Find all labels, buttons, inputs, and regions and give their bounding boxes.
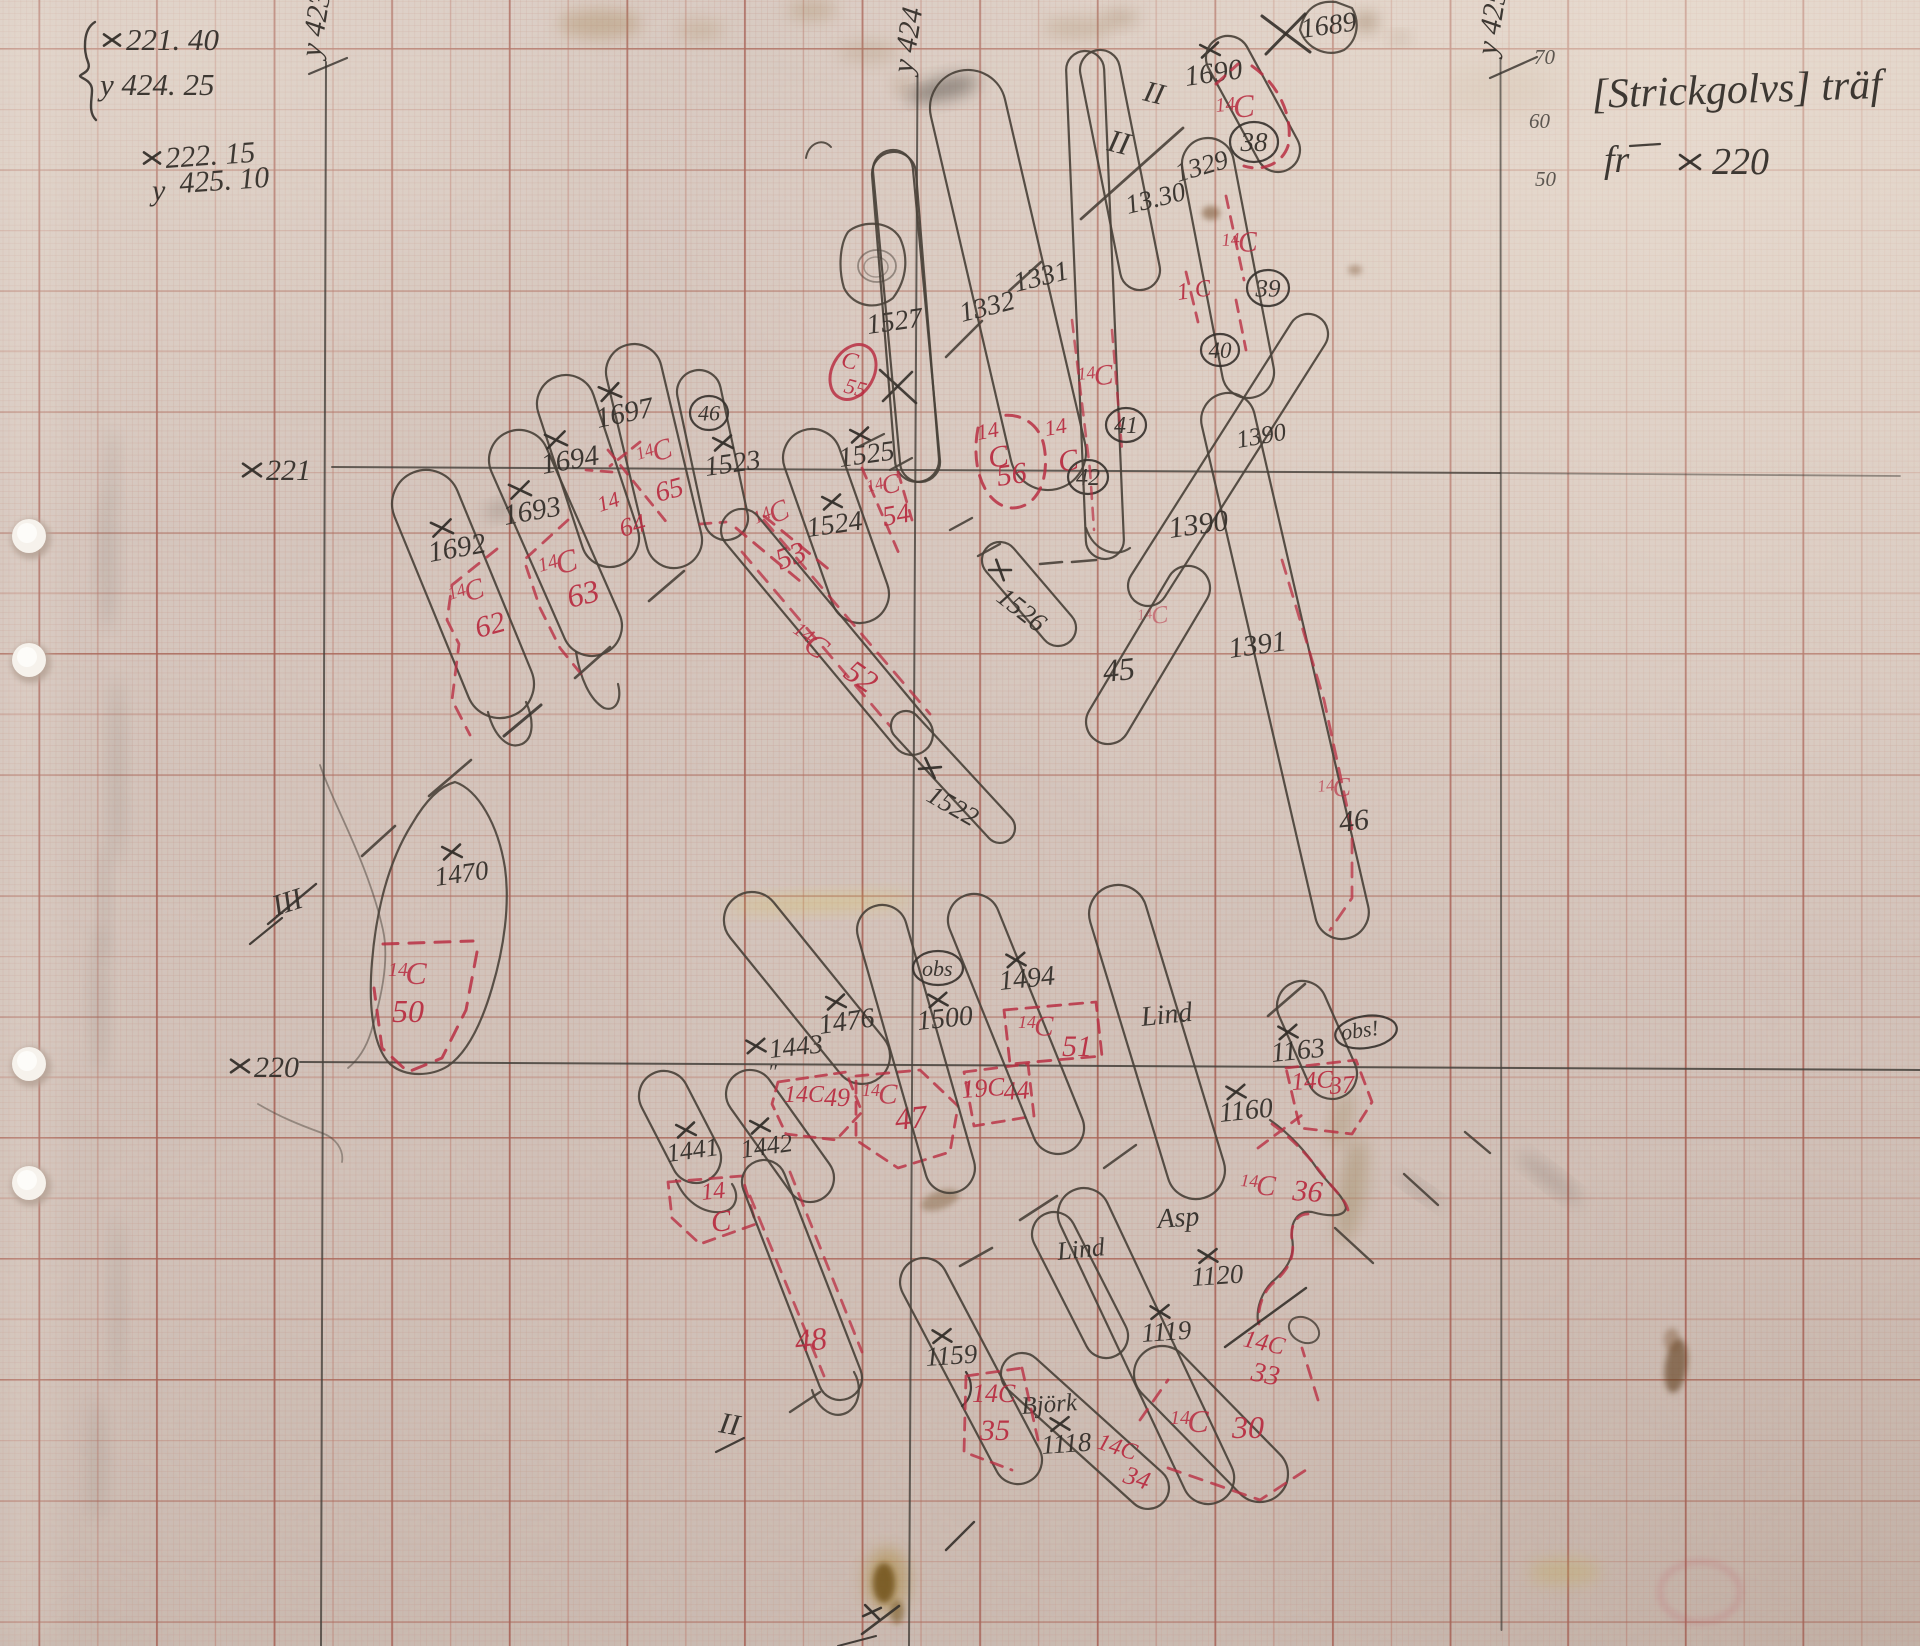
svg-text:37: 37 (1328, 1071, 1357, 1100)
svg-text:Lind: Lind (1138, 997, 1194, 1033)
svg-text:47: 47 (893, 1098, 931, 1137)
svg-text:Lind: Lind (1055, 1232, 1107, 1266)
svg-text:1159: 1159 (924, 1338, 978, 1372)
svg-text:fr: fr (1604, 139, 1630, 181)
svg-text:51: 51 (1062, 1030, 1092, 1063)
svg-text:220: 220 (254, 1051, 299, 1084)
svg-text:C: C (1187, 1403, 1209, 1439)
svg-text:Asp: Asp (1154, 1201, 1200, 1235)
svg-text:36: 36 (1291, 1174, 1324, 1209)
svg-text:y: y (149, 174, 166, 207)
svg-text:C: C (1255, 1169, 1277, 1202)
svg-text:38: 38 (1240, 127, 1269, 157)
svg-text:1500: 1500 (915, 1000, 974, 1037)
svg-text:1160: 1160 (1217, 1092, 1274, 1128)
svg-text:48: 48 (793, 1320, 829, 1359)
svg-text:40: 40 (1209, 338, 1233, 363)
svg-text:221. 40: 221. 40 (126, 22, 220, 57)
svg-text:50: 50 (1535, 167, 1557, 191)
svg-text:49: 49 (824, 1083, 850, 1112)
svg-text:C: C (1237, 226, 1259, 259)
svg-text:Björk: Björk (1021, 1389, 1079, 1420)
svg-text:70: 70 (1534, 45, 1556, 69)
svg-text:46: 46 (1337, 803, 1370, 839)
svg-text:1494: 1494 (997, 960, 1056, 997)
svg-text:35: 35 (979, 1414, 1010, 1447)
svg-text:14C: 14C (972, 1379, 1016, 1408)
svg-text:C: C (1034, 1010, 1054, 1042)
svg-text:44: 44 (1002, 1075, 1030, 1106)
svg-text:45: 45 (1101, 650, 1137, 689)
svg-text:14: 14 (700, 1178, 727, 1206)
svg-text:y 424. 25: y 424. 25 (97, 67, 215, 102)
svg-text:60: 60 (1529, 109, 1551, 133)
svg-text:221: 221 (266, 454, 311, 487)
svg-text:39: 39 (1255, 276, 1282, 303)
svg-text:1118: 1118 (1040, 1427, 1092, 1460)
svg-text:1443: 1443 (767, 1028, 824, 1063)
svg-text:41: 41 (1114, 413, 1138, 439)
svg-text:425. 10: 425. 10 (178, 161, 270, 200)
svg-text:19C: 19C (960, 1072, 1006, 1104)
svg-text:50: 50 (392, 993, 424, 1029)
svg-text:46: 46 (698, 400, 720, 425)
svg-text:42: 42 (1076, 465, 1100, 491)
svg-text:C: C (1092, 359, 1115, 393)
svg-text:56: 56 (994, 456, 1028, 493)
svg-text:obs: obs (922, 956, 953, 981)
svg-text:1 C: 1 C (1175, 275, 1213, 306)
svg-text:obs!: obs! (1339, 1015, 1380, 1045)
svg-text:220: 220 (1712, 141, 1769, 183)
svg-text:′′: ′′ (768, 1061, 777, 1083)
svg-text:54: 54 (880, 498, 913, 533)
svg-text:30: 30 (1231, 1409, 1264, 1445)
svg-text:C: C (405, 955, 427, 991)
svg-text:14C: 14C (1291, 1066, 1335, 1096)
svg-text:14: 14 (1043, 412, 1069, 440)
svg-text:1120: 1120 (1190, 1258, 1244, 1292)
svg-text:1119: 1119 (1140, 1315, 1192, 1348)
svg-text:C: C (1231, 87, 1257, 125)
svg-text:14C: 14C (784, 1082, 825, 1108)
